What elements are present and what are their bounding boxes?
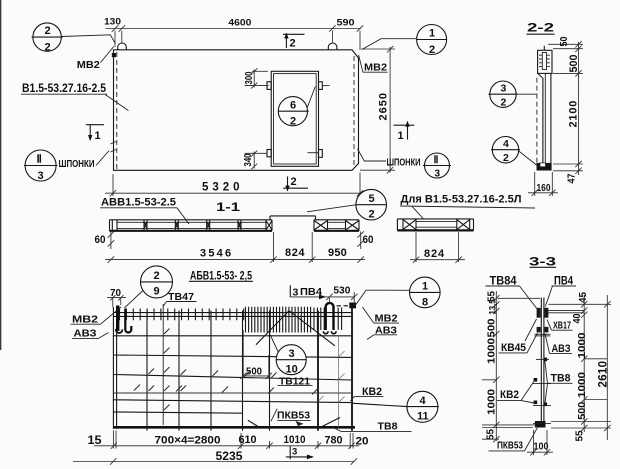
svg-text:500: 500 xyxy=(568,55,580,73)
svg-text:1000: 1000 xyxy=(576,332,588,358)
svg-text:АВЗ: АВЗ xyxy=(74,328,97,340)
svg-text:160: 160 xyxy=(537,183,551,194)
svg-text:1-1: 1-1 xyxy=(216,200,240,214)
svg-text:Ⅱ: Ⅱ xyxy=(434,155,439,166)
svg-text:2610: 2610 xyxy=(598,361,610,388)
svg-text:610: 610 xyxy=(239,434,257,446)
svg-text:ПКВ53: ПКВ53 xyxy=(497,439,523,451)
svg-text:1: 1 xyxy=(398,130,404,142)
svg-text:5235: 5235 xyxy=(216,451,244,463)
svg-text:КВ2: КВ2 xyxy=(500,389,519,401)
svg-text:ШПОНКИ: ШПОНКИ xyxy=(59,159,95,170)
svg-text:20: 20 xyxy=(356,436,369,448)
svg-text:2: 2 xyxy=(290,116,296,128)
svg-text:4: 4 xyxy=(503,138,509,150)
svg-text:3: 3 xyxy=(289,348,295,360)
svg-text:5320: 5320 xyxy=(202,182,244,194)
svg-text:3: 3 xyxy=(501,83,507,95)
svg-text:3: 3 xyxy=(292,447,297,458)
svg-text:9: 9 xyxy=(154,286,160,298)
svg-text:МВ2: МВ2 xyxy=(375,312,398,324)
svg-text:2: 2 xyxy=(291,176,297,188)
svg-text:МВ2: МВ2 xyxy=(364,62,387,74)
svg-text:130: 130 xyxy=(104,17,121,27)
svg-text:15: 15 xyxy=(88,435,103,447)
svg-text:КВ45: КВ45 xyxy=(501,342,526,354)
svg-text:60: 60 xyxy=(363,234,374,246)
svg-text:500: 500 xyxy=(486,318,498,337)
svg-text:500: 500 xyxy=(576,402,588,420)
svg-text:70: 70 xyxy=(110,288,121,299)
svg-text:40: 40 xyxy=(572,313,583,323)
svg-text:45: 45 xyxy=(578,292,589,303)
svg-text:МВ2: МВ2 xyxy=(72,314,98,326)
svg-text:ПКВ53: ПКВ53 xyxy=(277,409,310,421)
svg-text:ШПОНКИ: ШПОНКИ xyxy=(387,157,421,168)
svg-text:1010: 1010 xyxy=(284,434,306,446)
svg-text:АБВ1.5-53- 2,5: АБВ1.5-53- 2,5 xyxy=(190,271,252,283)
svg-text:11: 11 xyxy=(417,411,429,423)
svg-text:50: 50 xyxy=(558,36,570,46)
svg-text:47: 47 xyxy=(567,173,578,183)
svg-text:ХВ17: ХВ17 xyxy=(553,320,571,332)
svg-text:2: 2 xyxy=(369,209,375,221)
svg-text:340: 340 xyxy=(243,153,254,166)
svg-text:Для В1.5-53.27.16-2.5Л: Для В1.5-53.27.16-2.5Л xyxy=(401,194,522,206)
svg-text:530: 530 xyxy=(333,285,350,297)
svg-text:1: 1 xyxy=(429,28,435,40)
svg-text:55: 55 xyxy=(486,429,497,440)
svg-text:2650: 2650 xyxy=(378,92,390,120)
svg-text:ПВ4: ПВ4 xyxy=(300,286,322,298)
svg-text:100: 100 xyxy=(534,441,549,453)
svg-text:2: 2 xyxy=(290,38,296,50)
svg-text:10: 10 xyxy=(286,364,298,376)
svg-text:950: 950 xyxy=(328,247,347,259)
svg-text:Ⅱ: Ⅱ xyxy=(37,154,42,166)
svg-text:6: 6 xyxy=(290,100,296,112)
svg-text:1: 1 xyxy=(422,281,428,293)
svg-text:8: 8 xyxy=(422,297,428,309)
svg-text:ТВ8: ТВ8 xyxy=(378,421,398,433)
svg-text:4: 4 xyxy=(420,395,427,407)
svg-text:2: 2 xyxy=(429,44,435,56)
svg-text:590: 590 xyxy=(337,18,355,29)
svg-text:3-3: 3-3 xyxy=(529,255,557,269)
svg-text:2100: 2100 xyxy=(568,100,580,128)
svg-text:780: 780 xyxy=(325,434,343,446)
svg-text:4600: 4600 xyxy=(228,18,251,29)
svg-text:60: 60 xyxy=(95,234,106,246)
svg-text:13,5: 13,5 xyxy=(488,300,498,315)
svg-text:824: 824 xyxy=(285,247,305,259)
svg-text:300: 300 xyxy=(244,71,255,84)
svg-text:2-2: 2-2 xyxy=(527,21,555,35)
svg-text:ТВ8: ТВ8 xyxy=(551,372,571,384)
svg-text:2: 2 xyxy=(503,152,509,164)
svg-text:1000: 1000 xyxy=(486,338,498,364)
svg-text:1000: 1000 xyxy=(486,389,498,415)
svg-text:700×4=2800: 700×4=2800 xyxy=(155,434,221,446)
svg-text:2: 2 xyxy=(501,97,507,109)
svg-text:2: 2 xyxy=(45,42,51,54)
svg-text:3546: 3546 xyxy=(200,247,233,259)
svg-text:АВВ1.5-53-2.5: АВВ1.5-53-2.5 xyxy=(101,197,176,209)
svg-text:2: 2 xyxy=(154,270,160,282)
svg-text:3: 3 xyxy=(38,170,44,182)
svg-text:МВ2: МВ2 xyxy=(77,59,100,71)
svg-text:3: 3 xyxy=(293,286,299,298)
svg-text:ТВ47: ТВ47 xyxy=(168,291,194,303)
svg-text:55: 55 xyxy=(575,430,586,441)
svg-text:5: 5 xyxy=(369,193,375,205)
svg-text:В1.5-53.27.16-2.5: В1.5-53.27.16-2.5 xyxy=(22,81,106,95)
svg-text:1000: 1000 xyxy=(576,372,588,398)
svg-text:2: 2 xyxy=(45,25,51,37)
svg-text:1: 1 xyxy=(95,130,101,142)
svg-text:3: 3 xyxy=(435,169,441,180)
svg-text:824: 824 xyxy=(424,248,445,260)
